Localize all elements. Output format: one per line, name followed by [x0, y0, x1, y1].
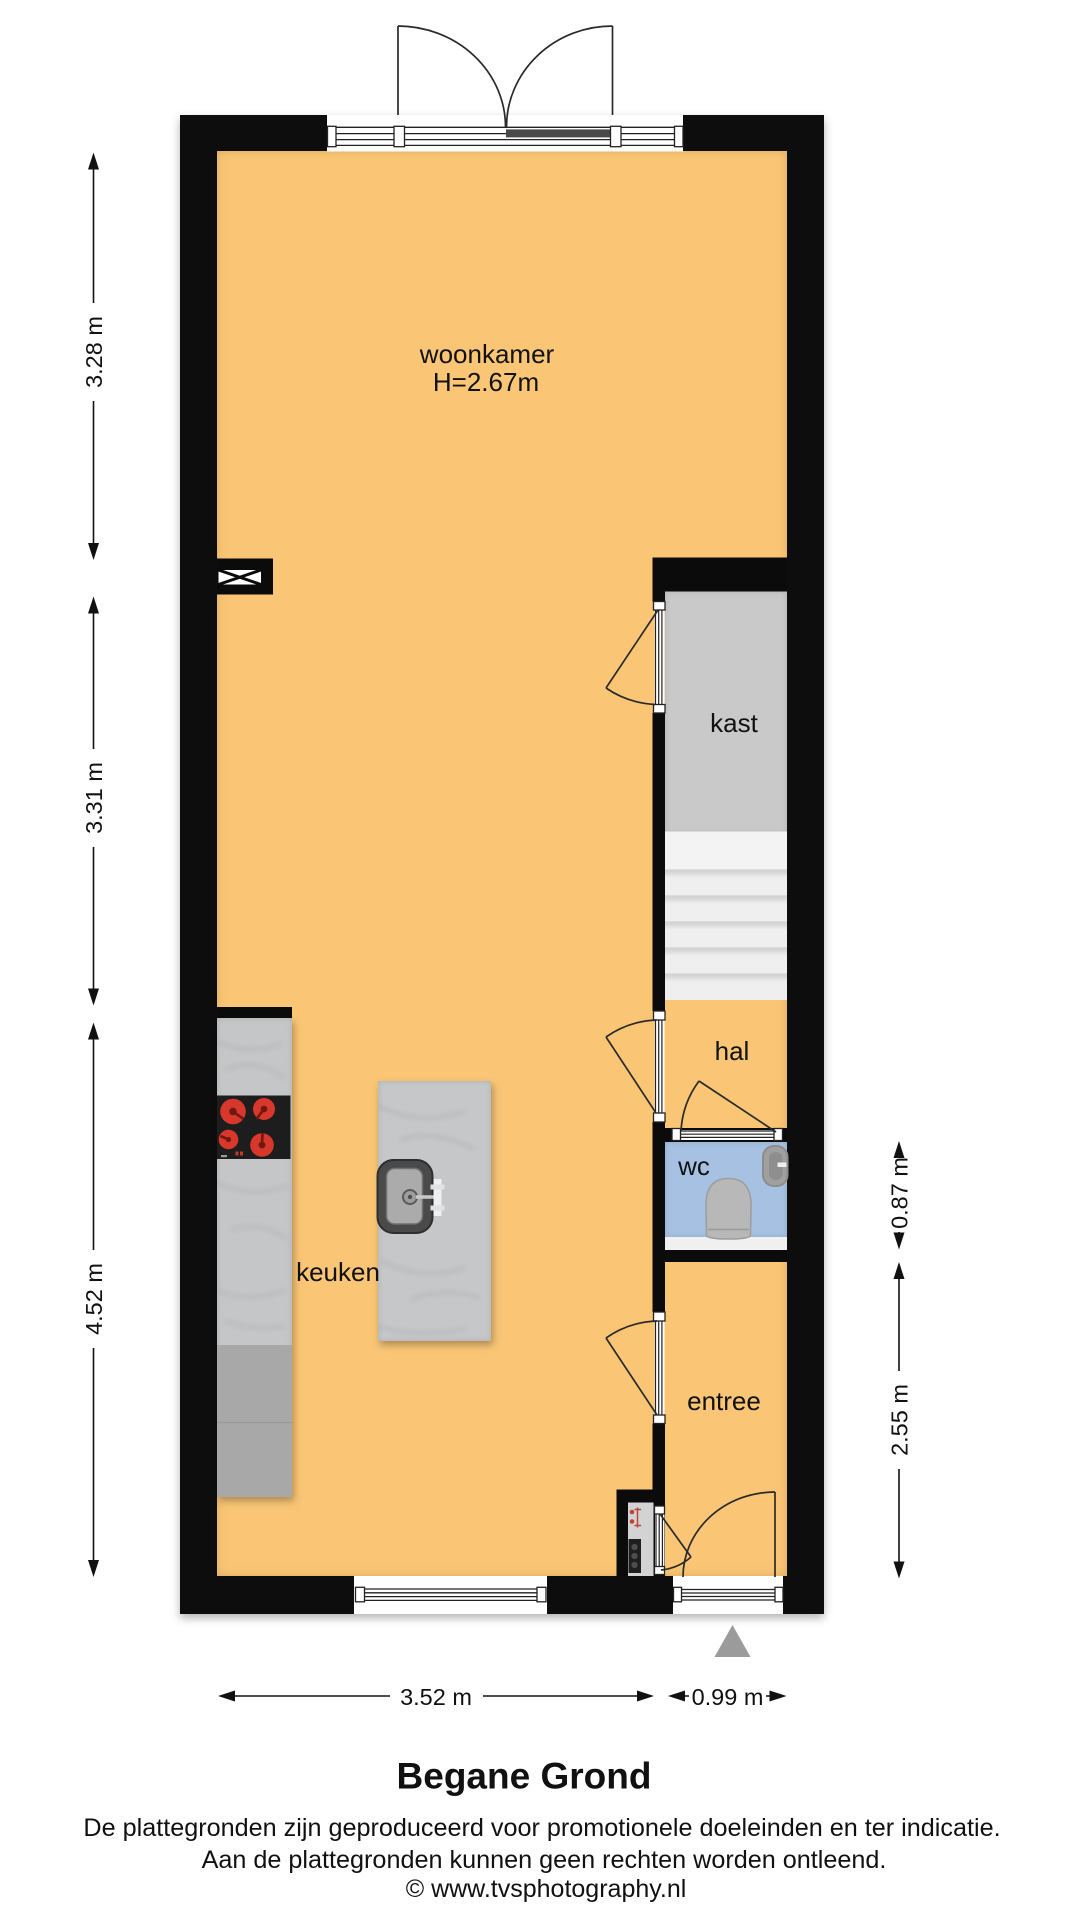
svg-text:© www.tvsphotography.nl: © www.tvsphotography.nl: [406, 1875, 687, 1903]
svg-text:De plattegronden zijn geproduc: De plattegronden zijn geproduceerd voor …: [83, 1814, 1000, 1842]
svg-text:0.87 m: 0.87 m: [887, 1157, 913, 1229]
svg-text:3.28 m: 3.28 m: [81, 316, 107, 388]
svg-text:3.52 m: 3.52 m: [400, 1684, 472, 1710]
svg-text:H=2.67m: H=2.67m: [433, 367, 539, 397]
svg-text:0.99 m: 0.99 m: [692, 1684, 764, 1710]
svg-text:keuken: keuken: [296, 1257, 380, 1287]
svg-text:4.52 m: 4.52 m: [81, 1263, 107, 1335]
svg-text:3.31 m: 3.31 m: [81, 762, 107, 834]
svg-text:hal: hal: [715, 1036, 750, 1066]
svg-text:Aan de plattegronden kunnen ge: Aan de plattegronden kunnen geen rechten…: [202, 1846, 887, 1874]
svg-text:entree: entree: [687, 1386, 761, 1416]
svg-text:woonkamer: woonkamer: [419, 339, 555, 369]
svg-text:2.55 m: 2.55 m: [887, 1384, 913, 1456]
svg-text:wc: wc: [677, 1151, 710, 1181]
svg-text:kast: kast: [710, 708, 758, 738]
svg-text:Begane Grond: Begane Grond: [397, 1756, 652, 1797]
